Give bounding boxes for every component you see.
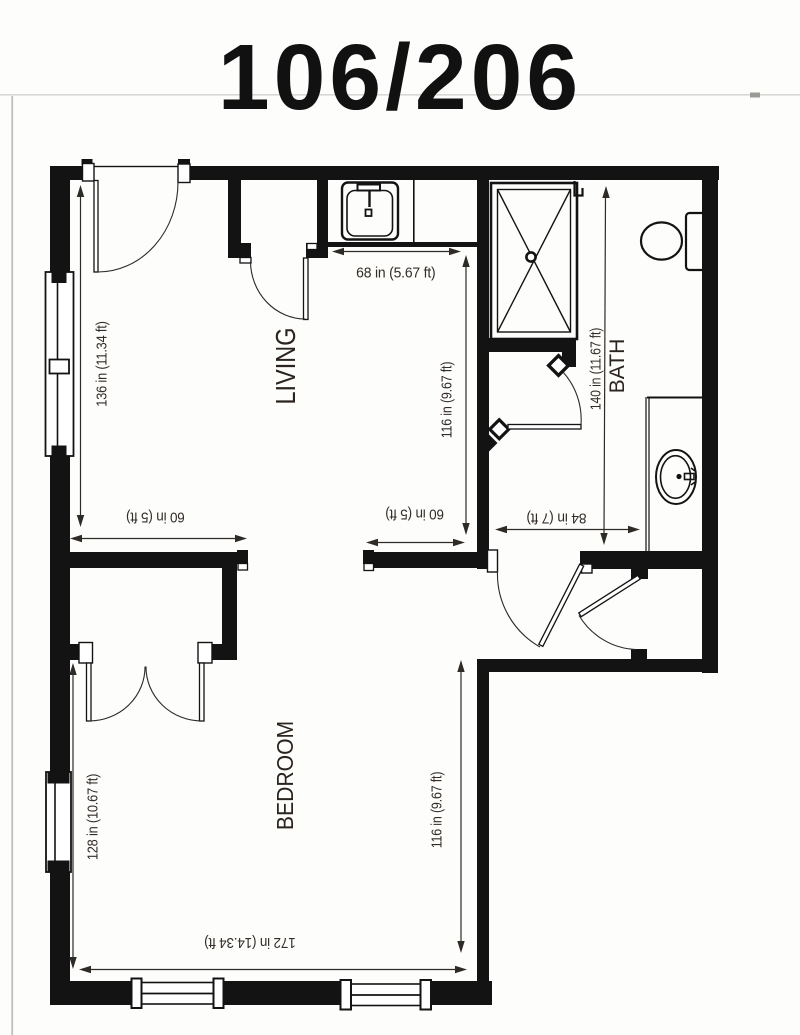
svg-text:116 in (9.67 ft): 116 in (9.67 ft) [428,772,444,849]
svg-text:68 in (5.67 ft): 68 in (5.67 ft) [356,265,435,282]
svg-text:140 in (11.67 ft): 140 in (11.67 ft) [587,328,603,410]
svg-text:60 in (5 ft): 60 in (5 ft) [385,505,444,522]
svg-text:172 in (14.34 ft): 172 in (14.34 ft) [204,934,295,951]
svg-text:128 in (10.67 ft): 128 in (10.67 ft) [83,774,100,860]
svg-text:106/206: 106/206 [218,25,582,129]
svg-text:84 in (7 ft): 84 in (7 ft) [527,509,587,526]
svg-text:LIVING: LIVING [271,327,301,404]
svg-text:60 in (5 ft): 60 in (5 ft) [126,508,185,525]
svg-text:BATH: BATH [606,339,629,393]
svg-text:116 in (9.67 ft): 116 in (9.67 ft) [438,362,454,439]
svg-text:136 in (11.34 ft): 136 in (11.34 ft) [92,321,109,406]
svg-text:BEDROOM: BEDROOM [272,721,298,830]
